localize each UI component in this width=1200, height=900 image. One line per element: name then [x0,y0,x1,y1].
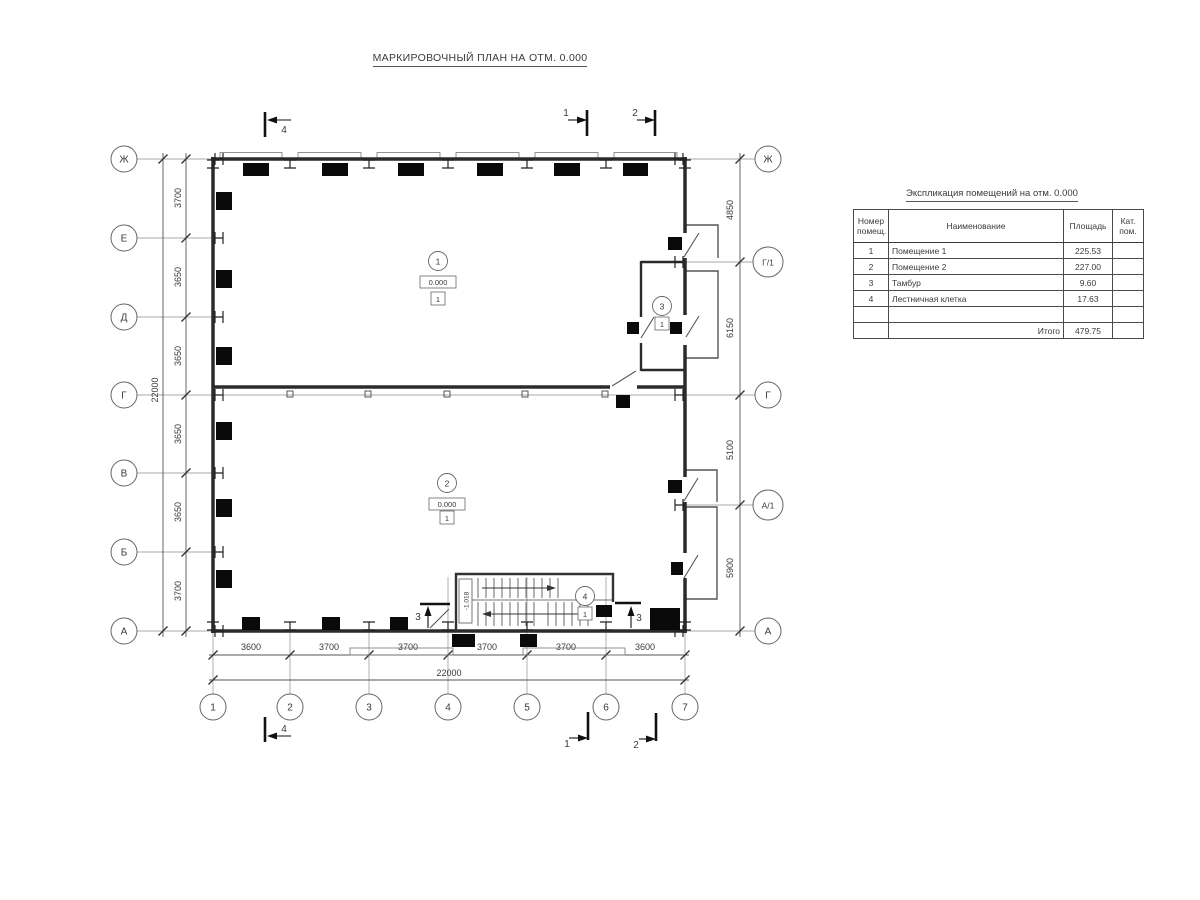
axis-left-0: Ж [119,155,129,166]
section-4-bottom-label: 4 [281,724,287,735]
schedule-cell-num: 1 [854,243,889,259]
tambour-walls [641,261,685,371]
schedule-cell-cat [1113,275,1144,291]
room4-label: 4 1 [576,587,595,621]
door-leaves [430,233,699,628]
room2-floor-type: 1 [445,514,449,523]
schedule-cell-cat [1113,291,1144,307]
room1-label: 1 0.000 1 [420,252,456,306]
dim-bottom-0: 3600 [241,642,261,652]
section-2-bottom: 2 [633,713,656,751]
schedule-header-number: Номер помещ. [854,210,889,243]
dim-left-5: 3700 [173,581,183,601]
room4-number: 4 [583,592,588,602]
schedule-cell-name: Помещение 1 [889,243,1064,259]
axis-left-3: Г [121,391,127,402]
axis-bottom-1: 2 [287,703,293,714]
axis-left-6: А [121,627,128,638]
axis-bottom-5: 6 [603,703,609,714]
schedule-table: Номер помещ. Наименование Площадь Кат. п… [853,209,1144,339]
schedule-row: 4 Лестничная клетка 17.63 [854,291,1144,307]
schedule-total-row: Итого 479.75 [854,323,1144,339]
section-1-bottom-label: 1 [564,739,570,750]
schedule-header-name: Наименование [889,210,1064,243]
dim-bottom-4: 3700 [556,642,576,652]
schedule-total-spacer [854,323,889,339]
room2-label: 2 0.000 1 [429,474,465,525]
schedule-title-text: Экспликация помещений на отм. 0.000 [906,188,1078,202]
dim-left-total: 22000 [150,377,160,402]
dimension-lines [163,153,740,680]
room3-number: 3 [660,302,665,312]
axis-right-1: Г/1 [762,258,774,268]
schedule-header-area: Площадь [1064,210,1113,243]
dim-right-2: 5100 [725,440,735,460]
room3-label: 3 1 [653,297,672,331]
room-schedule: Экспликация помещений на отм. 0.000 Номе… [853,188,1131,339]
schedule-row [854,307,1144,323]
schedule-title: Экспликация помещений на отм. 0.000 [853,188,1131,199]
room2-elevation: 0.000 [438,500,457,509]
schedule-header-category: Кат. пом. [1113,210,1144,243]
axis-right-4: А [765,627,772,638]
schedule-row: 1 Помещение 1 225.53 [854,243,1144,259]
axis-left-4: В [121,469,128,480]
axis-bubbles-bottom: 1 2 3 4 5 6 7 [200,694,698,720]
room-labels: 1 0.000 1 2 0.000 1 3 1 [420,252,672,621]
schedule-cell-area [1064,307,1113,323]
section-3-right: 3 [615,603,642,628]
porch-outlines [685,225,718,599]
schedule-cell-area: 227.00 [1064,259,1113,275]
section-4-bottom: 4 [265,717,291,742]
dim-left-0: 3700 [173,188,183,208]
section-4-top-label: 4 [281,125,287,136]
dim-bottom-1: 3700 [319,642,339,652]
schedule-total-cat [1113,323,1144,339]
schedule-cell-num [854,307,889,323]
dim-right-1: 6150 [725,318,735,338]
section-3-right-label: 3 [636,613,642,624]
axis-bottom-6: 7 [682,703,688,714]
room1-floor-type: 1 [436,295,440,304]
section-3-left-label: 3 [415,612,421,623]
dim-right-0: 4850 [725,200,735,220]
schedule-cell-cat [1113,243,1144,259]
section-1-top: 1 [563,108,587,136]
schedule-row: 2 Помещение 2 227.00 [854,259,1144,275]
section-4-top: 4 [265,112,291,137]
room4-floor-type: 1 [583,610,587,619]
section-2-bottom-label: 2 [633,740,639,751]
section-1-bottom: 1 [564,712,588,750]
section-3-left: 3 [415,604,450,628]
axis-bubbles-left: Ж Е Д Г В Б А [111,146,137,644]
dim-bottom-3: 3700 [477,642,497,652]
axis-right-2: Г [765,391,771,402]
schedule-cell-area: 17.63 [1064,291,1113,307]
section-2-top: 2 [632,108,655,136]
dim-bottom-total: 22000 [436,668,461,678]
room2-number: 2 [445,479,450,489]
schedule-cell-num: 2 [854,259,889,275]
schedule-cell-num: 3 [854,275,889,291]
axis-bottom-3: 4 [445,703,451,714]
dim-left-3: 3650 [173,424,183,444]
dim-bottom-5: 3600 [635,642,655,652]
panel-outlines [220,153,677,656]
section-1-top-label: 1 [563,108,569,119]
dim-left-4: 3650 [173,502,183,522]
stair-elevation-mark: -1.018 [464,591,471,610]
schedule-cell-cat [1113,259,1144,275]
drawing-sheet: МАРКИРОВОЧНЫЙ ПЛАН НА ОТМ. 0.000 [0,0,1200,900]
axis-bottom-4: 5 [524,703,530,714]
dim-left-2: 3650 [173,346,183,366]
axis-bottom-2: 3 [366,703,372,714]
axis-left-5: Б [121,548,128,559]
room1-elevation: 0.000 [429,278,448,287]
axis-bubbles-right: Ж Г/1 Г А/1 А [753,146,783,644]
schedule-cell-name [889,307,1064,323]
schedule-cell-cat [1113,307,1144,323]
schedule-total-value: 479.75 [1064,323,1113,339]
dim-left-1: 3650 [173,267,183,287]
dimension-ticks [159,155,745,685]
axis-left-2: Д [121,313,128,324]
dim-right-3: 5900 [725,558,735,578]
schedule-total-label: Итого [889,323,1064,339]
floor-plan-canvas: 3700 3650 3650 3650 3650 3700 22000 3600… [0,0,1200,900]
room3-floor-type: 1 [660,320,664,329]
dim-bottom-2: 3700 [398,642,418,652]
axis-bottom-0: 1 [210,703,216,714]
section-2-top-label: 2 [632,108,638,119]
schedule-cell-area: 225.53 [1064,243,1113,259]
schedule-cell-name: Лестничная клетка [889,291,1064,307]
axis-right-0: Ж [763,155,773,166]
room1-number: 1 [436,257,441,267]
schedule-cell-name: Тамбур [889,275,1064,291]
axis-right-3: А/1 [762,501,775,511]
schedule-cell-area: 9.60 [1064,275,1113,291]
axis-left-1: Е [121,234,128,245]
schedule-cell-num: 4 [854,291,889,307]
schedule-cell-name: Помещение 2 [889,259,1064,275]
schedule-row: 3 Тамбур 9.60 [854,275,1144,291]
